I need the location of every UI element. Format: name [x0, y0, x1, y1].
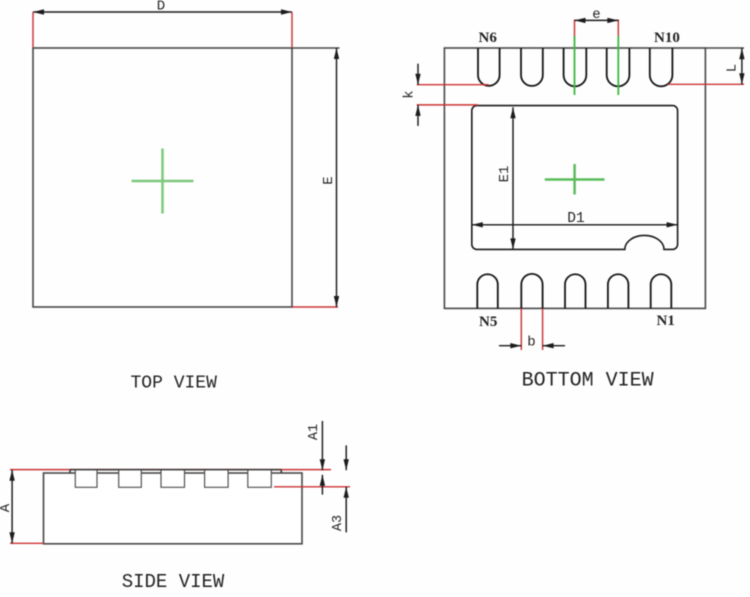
- svg-text:N6: N6: [479, 30, 498, 46]
- svg-text:E: E: [321, 176, 337, 184]
- svg-text:SIDE VIEW: SIDE VIEW: [122, 571, 225, 592]
- svg-text:b: b: [527, 335, 535, 351]
- svg-text:N5: N5: [479, 314, 497, 330]
- svg-text:BOTTOM VIEW: BOTTOM VIEW: [522, 370, 654, 393]
- svg-text:L: L: [725, 64, 741, 72]
- svg-text:D1: D1: [567, 211, 584, 227]
- svg-text:A3: A3: [331, 515, 346, 531]
- svg-text:TOP VIEW: TOP VIEW: [130, 374, 217, 394]
- svg-text:E1: E1: [497, 166, 513, 183]
- svg-text:N10: N10: [654, 30, 680, 46]
- svg-text:D: D: [157, 0, 165, 15]
- svg-text:e: e: [592, 7, 600, 23]
- svg-text:N1: N1: [657, 313, 675, 329]
- svg-text:A1: A1: [307, 424, 322, 440]
- svg-text:k: k: [402, 90, 418, 98]
- svg-text:A: A: [0, 503, 14, 512]
